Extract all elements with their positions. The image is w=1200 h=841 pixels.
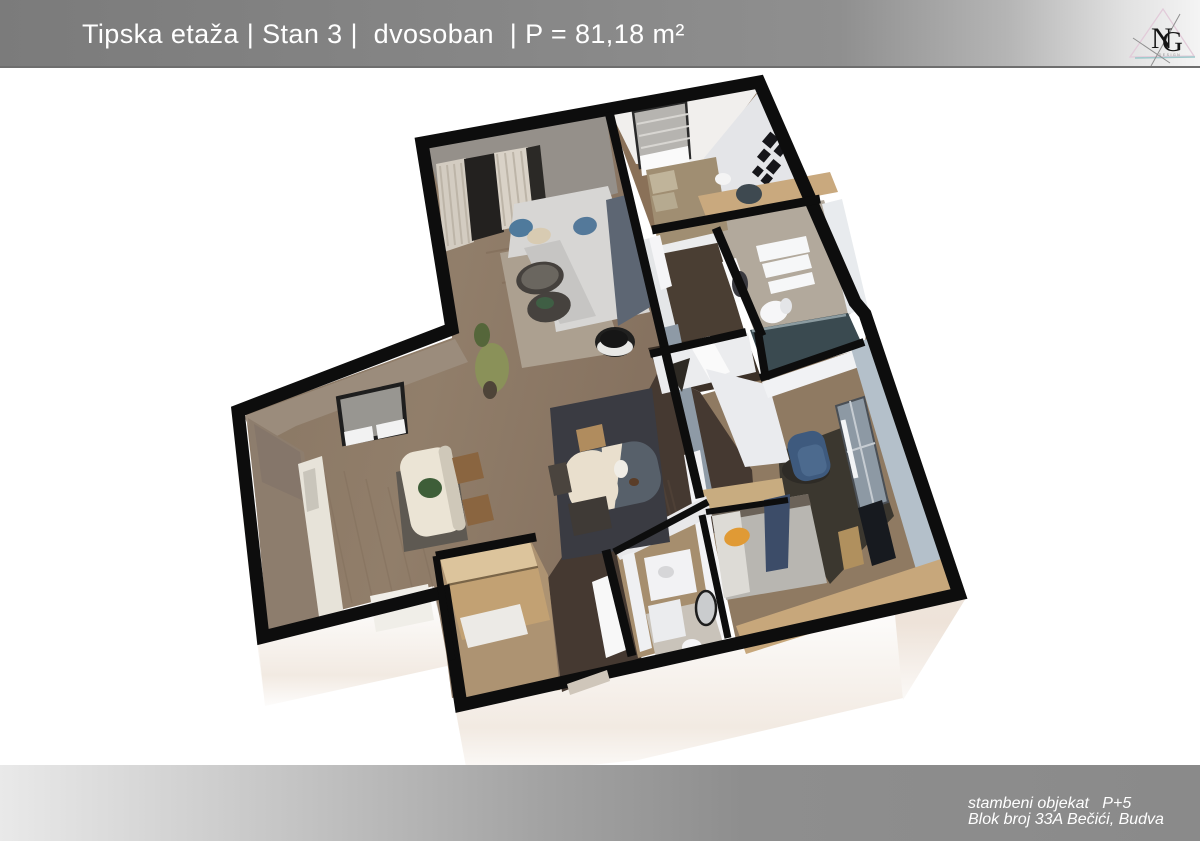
svg-text:DESIGN: DESIGN — [1159, 53, 1181, 57]
